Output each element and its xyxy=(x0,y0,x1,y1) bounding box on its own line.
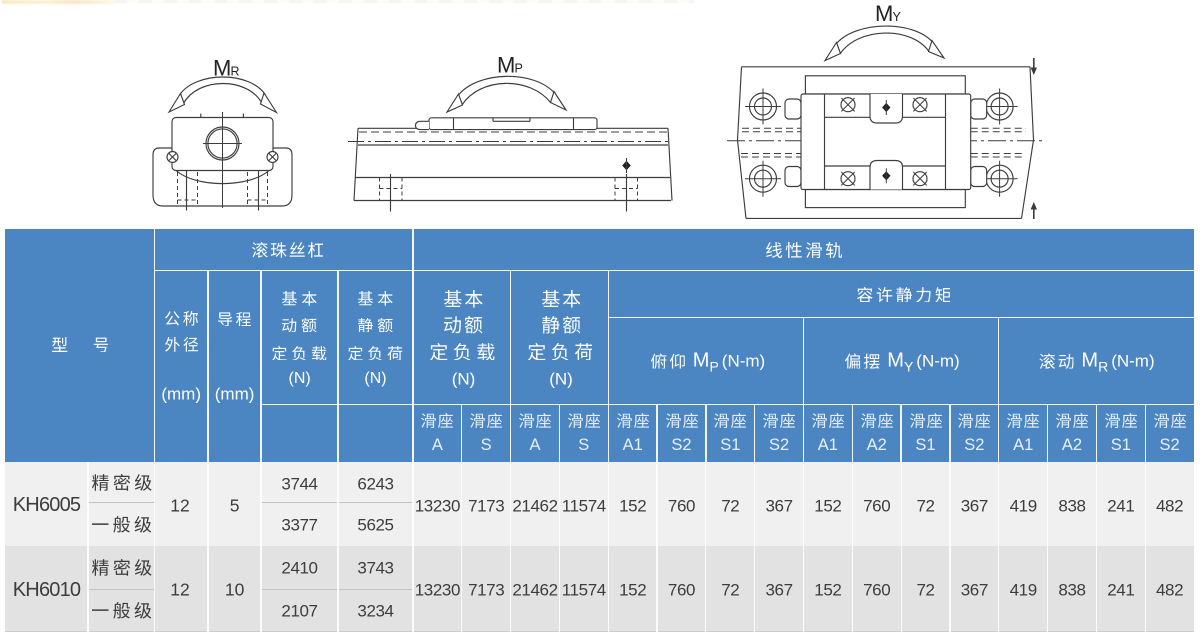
svg-text:M: M xyxy=(875,1,893,26)
svg-text:Y: Y xyxy=(893,10,902,24)
svg-text:M: M xyxy=(497,53,515,78)
svg-text:P: P xyxy=(515,62,523,76)
svg-text:R: R xyxy=(231,65,240,79)
